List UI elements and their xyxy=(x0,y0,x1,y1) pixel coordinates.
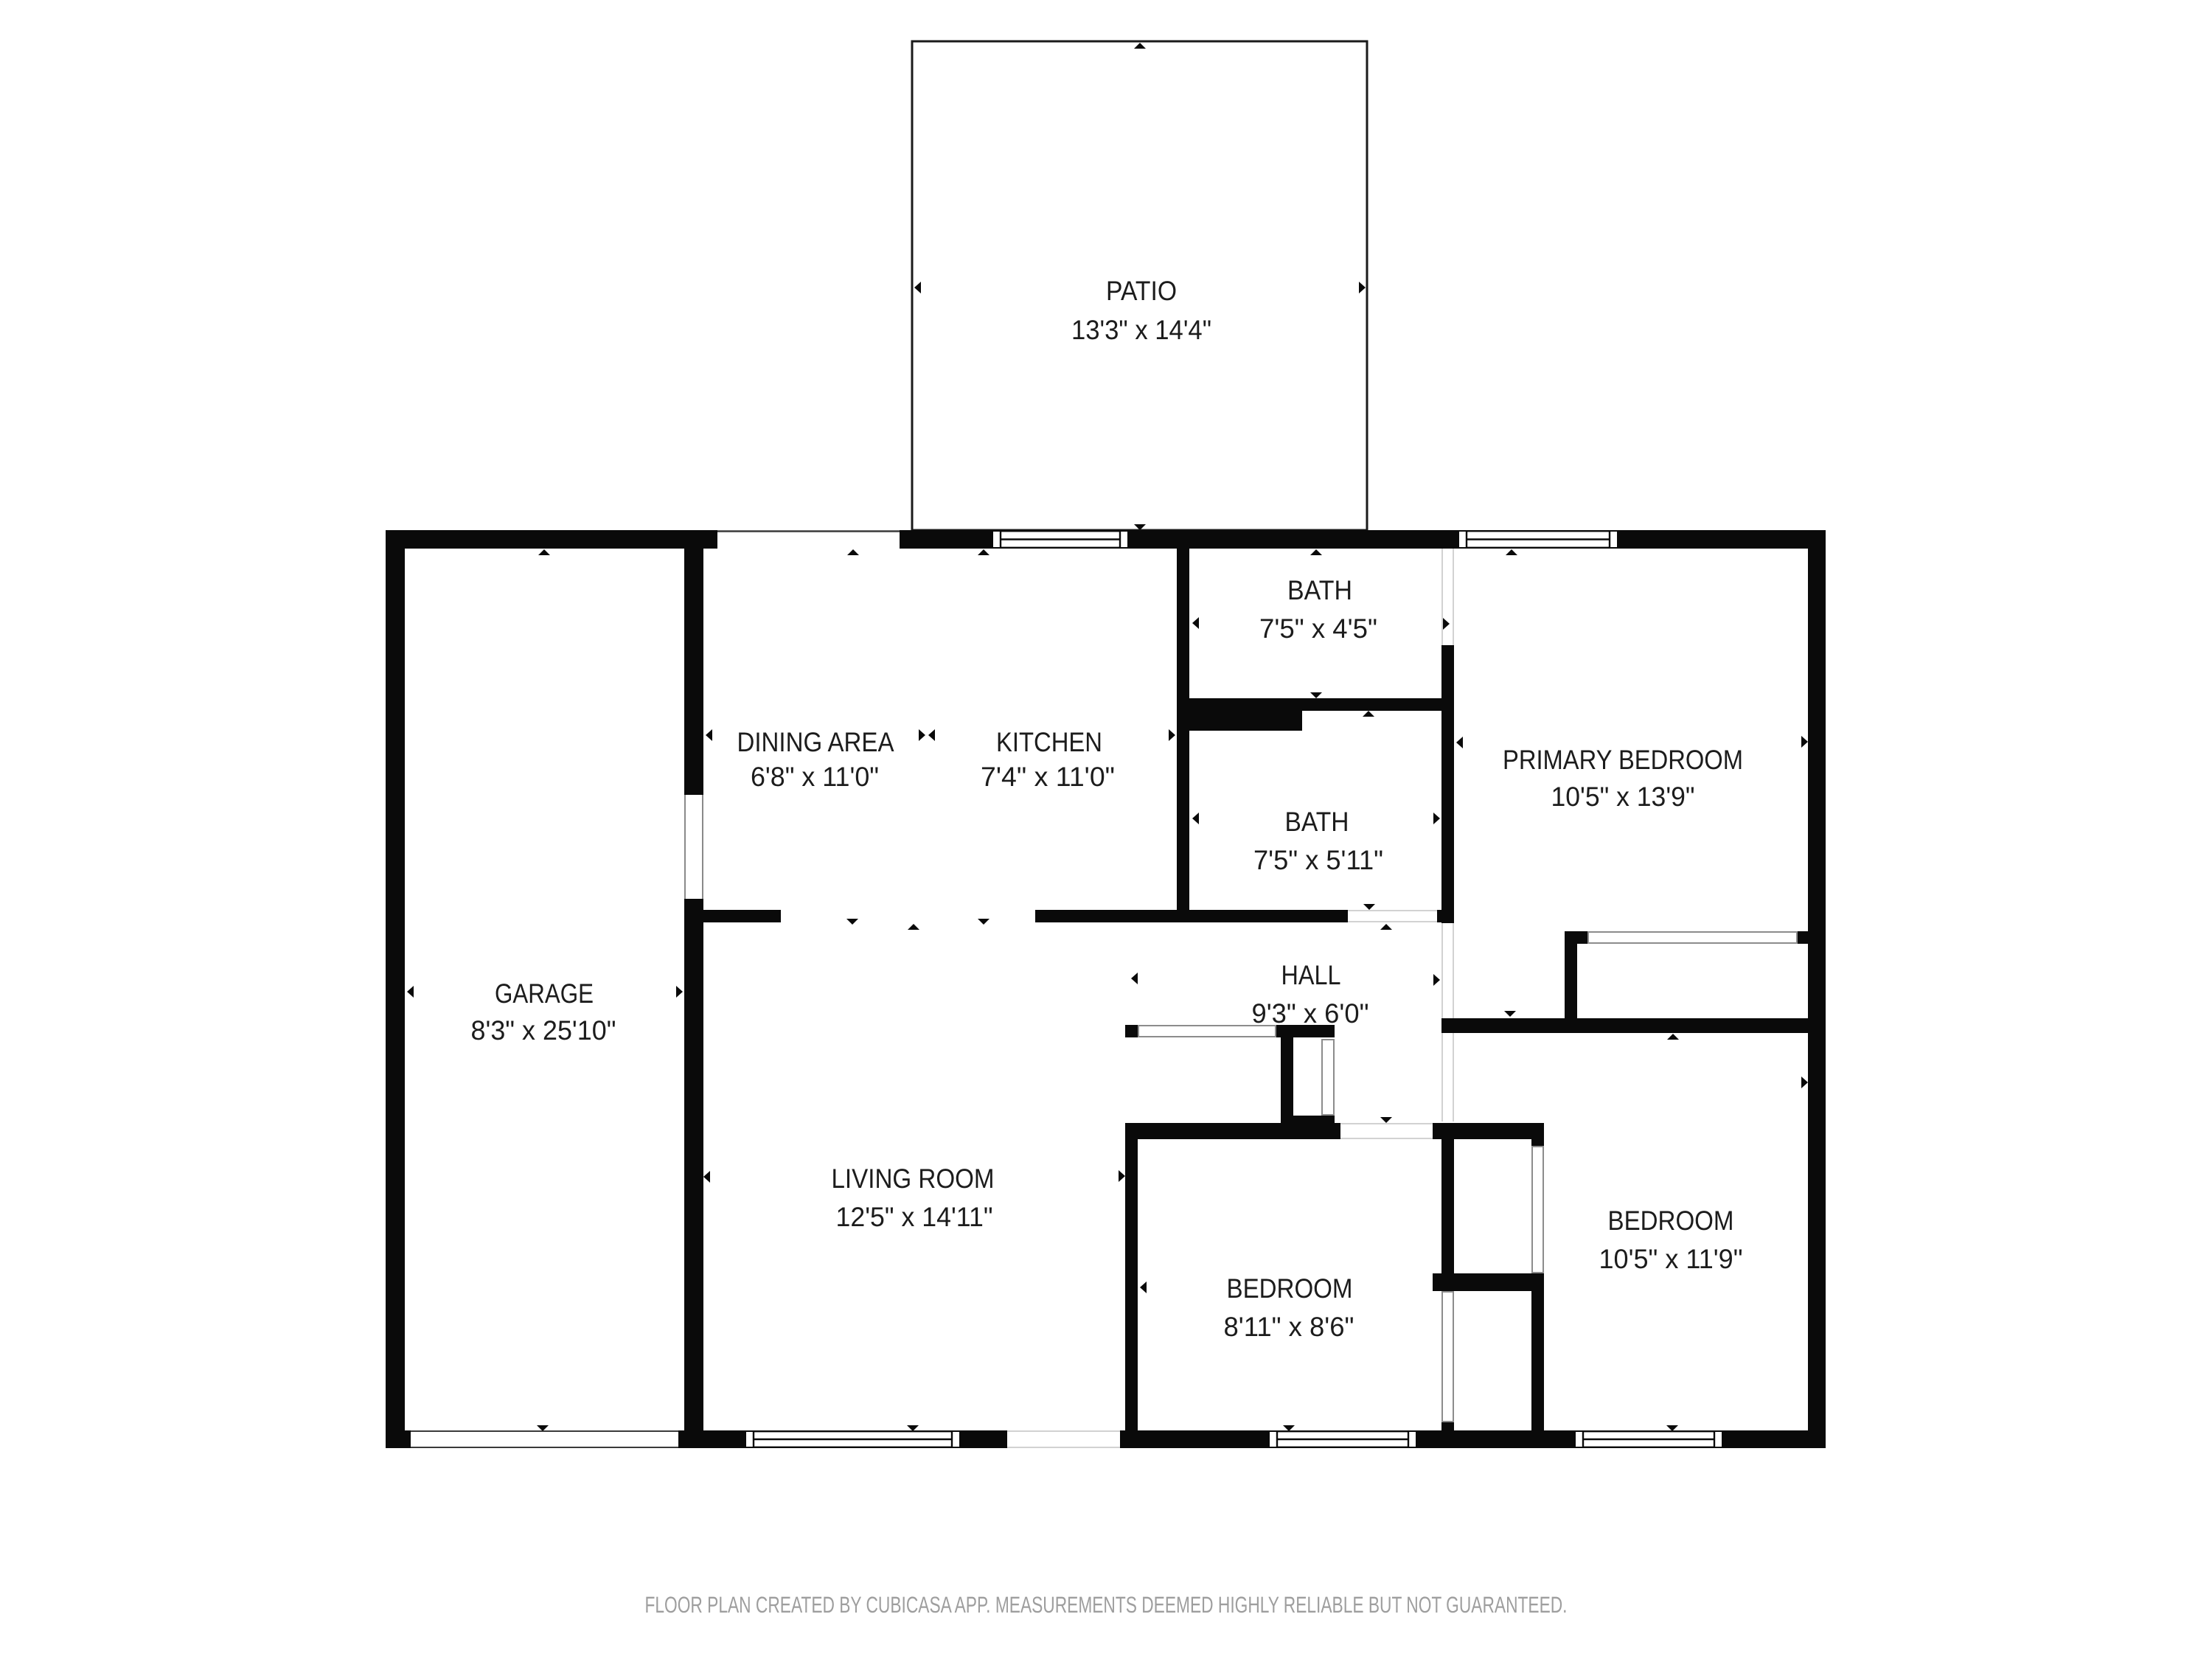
svg-text:BEDROOM: BEDROOM xyxy=(1227,1273,1353,1304)
svg-text:PATIO: PATIO xyxy=(1106,276,1177,306)
svg-text:DINING AREA: DINING AREA xyxy=(737,727,894,757)
svg-text:FLOOR PLAN CREATED BY CUBICASA: FLOOR PLAN CREATED BY CUBICASA APP. MEAS… xyxy=(645,1592,1568,1618)
svg-text:BEDROOM: BEDROOM xyxy=(1608,1206,1734,1236)
svg-text:8'3" x 25'10": 8'3" x 25'10" xyxy=(471,1015,616,1046)
svg-text:HALL: HALL xyxy=(1281,960,1341,990)
svg-text:7'5" x 4'5": 7'5" x 4'5" xyxy=(1259,613,1377,644)
svg-text:KITCHEN: KITCHEN xyxy=(996,727,1102,757)
svg-text:6'8" x 11'0": 6'8" x 11'0" xyxy=(751,762,879,792)
svg-text:GARAGE: GARAGE xyxy=(495,978,594,1009)
svg-text:7'4" x 11'0": 7'4" x 11'0" xyxy=(981,762,1115,792)
svg-text:10'5" x 13'9": 10'5" x 13'9" xyxy=(1551,782,1695,812)
svg-text:13'3" x 14'4": 13'3" x 14'4" xyxy=(1071,315,1211,345)
svg-text:7'5" x 5'11": 7'5" x 5'11" xyxy=(1253,845,1383,875)
svg-text:12'5" x 14'11": 12'5" x 14'11" xyxy=(836,1202,993,1232)
svg-text:LIVING ROOM: LIVING ROOM xyxy=(832,1164,995,1194)
svg-text:PRIMARY BEDROOM: PRIMARY BEDROOM xyxy=(1503,745,1743,775)
svg-text:9'3" x 6'0": 9'3" x 6'0" xyxy=(1252,998,1369,1029)
svg-text:BATH: BATH xyxy=(1285,807,1349,837)
svg-text:8'11" x 8'6": 8'11" x 8'6" xyxy=(1224,1312,1354,1342)
svg-text:10'5" x 11'9": 10'5" x 11'9" xyxy=(1599,1244,1743,1274)
svg-text:BATH: BATH xyxy=(1287,575,1352,605)
